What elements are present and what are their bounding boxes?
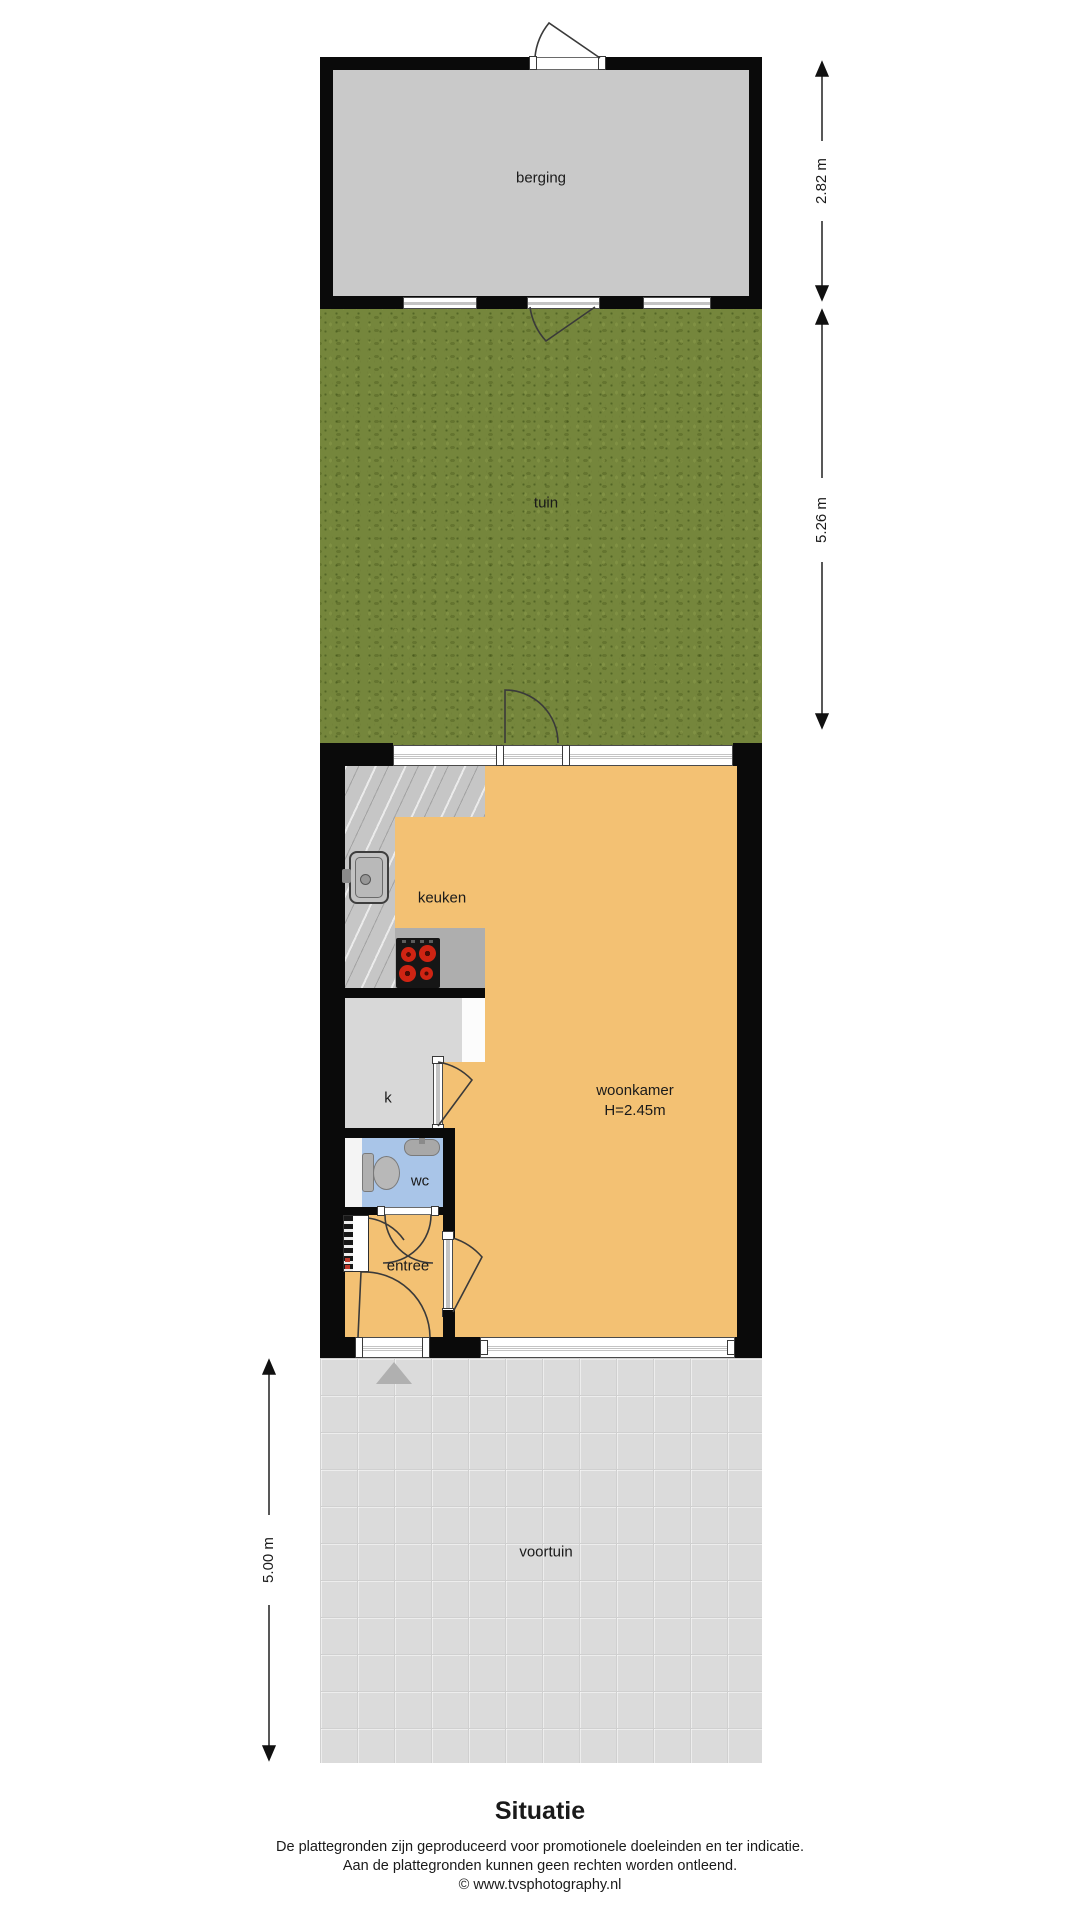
voortuin-tiles xyxy=(320,1358,762,1763)
living-left-wall xyxy=(320,766,345,1337)
berging-right-wall xyxy=(749,57,762,309)
toilet-bowl xyxy=(373,1156,400,1190)
copyright-line: © www.tvsphotography.nl xyxy=(0,1877,1080,1893)
disclaimer-line-1: De plattegronden zijn geproduceerd voor … xyxy=(0,1839,1080,1855)
sink-drain xyxy=(360,874,371,885)
window-jamb xyxy=(727,1340,735,1355)
stove-knob xyxy=(429,940,433,943)
berging-window xyxy=(403,297,477,309)
closet-label: k xyxy=(384,1090,392,1107)
berging-depth-dimension: 2.82 m xyxy=(812,141,832,221)
window-mullion xyxy=(496,745,504,766)
door-jamb xyxy=(442,1231,454,1240)
berging-garden-door xyxy=(527,297,600,309)
door-jamb xyxy=(422,1337,430,1358)
stove-knob xyxy=(402,940,406,943)
berging-door xyxy=(535,57,600,70)
entree-label: entree xyxy=(387,1258,430,1275)
burner xyxy=(401,947,416,962)
sink-icon xyxy=(349,851,389,904)
berging-label: berging xyxy=(516,170,566,187)
wc-door xyxy=(383,1207,433,1215)
berging-left-wall xyxy=(320,57,333,309)
closet-recess xyxy=(462,998,485,1062)
closet-door xyxy=(433,1062,443,1126)
front-window xyxy=(480,1337,735,1358)
woonkamer-name: woonkamer xyxy=(596,1081,674,1101)
tuin-depth-dimension: 5.26 m xyxy=(812,480,832,560)
tuin-grass xyxy=(320,309,762,745)
berging-window xyxy=(643,297,711,309)
faucet-icon xyxy=(342,869,351,883)
stove-knob xyxy=(411,940,415,943)
page-title: Situatie xyxy=(0,1797,1080,1826)
burner xyxy=(420,967,433,980)
burner xyxy=(419,945,436,962)
washbasin-tap xyxy=(419,1138,425,1144)
front-wall-mid xyxy=(430,1337,480,1360)
kitchen-bottom-wall xyxy=(320,988,485,998)
burner xyxy=(399,965,416,982)
voortuin-label: voortuin xyxy=(519,1544,572,1561)
entree-woonkamer-door xyxy=(443,1238,453,1310)
door-jamb xyxy=(432,1056,444,1064)
front-wall-right xyxy=(735,1337,762,1360)
window-jamb xyxy=(480,1340,488,1355)
voortuin-depth-dimension: 5.00 m xyxy=(259,1520,279,1600)
door-jamb xyxy=(598,56,606,70)
disclaimer-line-2: Aan de plattegronden kunnen geen rechten… xyxy=(0,1858,1080,1874)
door-jamb xyxy=(355,1337,363,1358)
front-door xyxy=(355,1337,430,1358)
woonkamer-label: woonkamer H=2.45m xyxy=(596,1081,674,1121)
woonkamer-height: H=2.45m xyxy=(596,1101,674,1121)
meter-red-dot xyxy=(345,1265,350,1269)
keuken-label: keuken xyxy=(418,890,466,907)
door-jamb xyxy=(431,1206,439,1216)
stove-icon xyxy=(396,938,440,988)
wc-recess xyxy=(345,1138,362,1207)
closet-floor-upper xyxy=(433,998,462,1062)
tuin-label: tuin xyxy=(534,495,558,512)
floorplan-page: berging tuin keuken woonkamer H=2.45m k … xyxy=(0,0,1080,1920)
door-jamb xyxy=(377,1206,385,1216)
window-mullion xyxy=(562,745,570,766)
wc-label: wc xyxy=(411,1173,429,1190)
meter-panel xyxy=(344,1216,353,1271)
living-right-wall xyxy=(737,766,762,1337)
entrance-triangle-icon xyxy=(376,1362,412,1384)
closet-floor xyxy=(345,998,433,1128)
meter-red-dot xyxy=(345,1258,350,1262)
closet-bottom-wall xyxy=(320,1128,455,1138)
entree-right-wall-lower xyxy=(443,1310,455,1337)
front-wall-left xyxy=(320,1337,355,1360)
door-jamb xyxy=(529,56,537,70)
stove-knob xyxy=(420,940,424,943)
